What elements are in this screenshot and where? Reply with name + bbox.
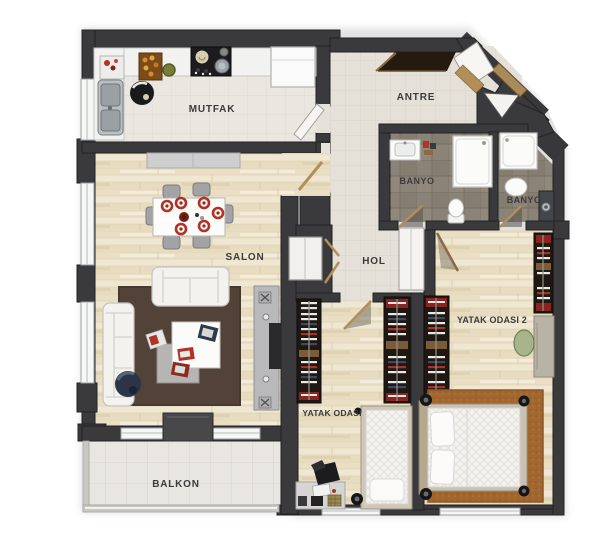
svg-text:ANTRE: ANTRE [397,92,435,103]
svg-text:MUTFAK: MUTFAK [189,104,235,115]
svg-text:BANYO: BANYO [507,195,542,205]
svg-text:HOL: HOL [362,256,386,267]
svg-text:BALKON: BALKON [152,479,200,490]
svg-text:YATAK ODASI 2: YATAK ODASI 2 [457,315,527,325]
svg-text:YATAK ODASI: YATAK ODASI [302,408,361,418]
svg-text:SALON: SALON [226,252,265,263]
svg-text:BANYO: BANYO [399,176,434,186]
